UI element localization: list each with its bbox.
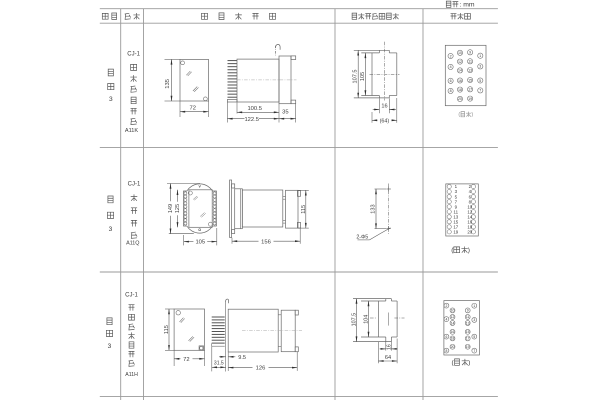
svg-text:9: 9 [467, 309, 469, 313]
svg-text:17: 17 [466, 337, 470, 341]
svg-text:14: 14 [451, 321, 455, 325]
svg-text:5: 5 [479, 79, 481, 83]
svg-text:16: 16 [451, 330, 455, 334]
svg-text:18: 18 [451, 337, 455, 341]
svg-text:15: 15 [466, 330, 470, 334]
svg-text:6: 6 [450, 79, 452, 83]
svg-text:149: 149 [168, 204, 174, 213]
svg-text:31.5: 31.5 [214, 360, 224, 366]
svg-text:135: 135 [165, 79, 171, 89]
svg-text:105: 105 [360, 72, 366, 81]
svg-text:4: 4 [450, 65, 452, 69]
svg-text:A11Q: A11Q [126, 241, 139, 247]
svg-text:12: 12 [451, 315, 455, 319]
svg-text:A11H: A11H [125, 372, 138, 378]
svg-text:18: 18 [458, 88, 462, 92]
svg-text:15: 15 [468, 78, 472, 82]
svg-text:133: 133 [370, 204, 376, 213]
svg-text:): ) [468, 247, 470, 254]
svg-text:4: 4 [445, 317, 447, 321]
svg-text:6: 6 [445, 335, 447, 339]
svg-text:3: 3 [473, 318, 475, 322]
svg-text:16: 16 [458, 79, 462, 83]
svg-text:13: 13 [466, 321, 470, 325]
svg-text:): ) [468, 360, 470, 367]
svg-text:122.5: 122.5 [244, 117, 259, 123]
svg-text:CJ-1: CJ-1 [125, 293, 138, 299]
svg-text:3: 3 [479, 65, 481, 69]
svg-text:7: 7 [479, 89, 481, 93]
svg-text:1: 1 [473, 304, 475, 308]
svg-text:CJ-1: CJ-1 [128, 182, 141, 188]
svg-text:8: 8 [450, 89, 452, 93]
svg-text:115: 115 [301, 205, 307, 214]
svg-text:(: ( [458, 112, 460, 118]
svg-text:2: 2 [445, 304, 447, 308]
svg-text:16: 16 [386, 344, 392, 350]
svg-text:14: 14 [458, 69, 462, 73]
svg-text:72: 72 [189, 105, 195, 111]
svg-text:35: 35 [282, 109, 288, 115]
svg-text:126: 126 [256, 366, 266, 372]
svg-text:16: 16 [381, 103, 387, 109]
svg-text:20: 20 [458, 97, 462, 101]
svg-text:(64): (64) [380, 118, 390, 124]
svg-text:156: 156 [261, 239, 271, 245]
svg-text:9: 9 [469, 51, 471, 55]
svg-text:19: 19 [468, 97, 472, 101]
svg-text:115: 115 [164, 325, 170, 334]
svg-text:105: 105 [195, 240, 205, 246]
svg-text:107.5: 107.5 [353, 70, 359, 84]
svg-text:19: 19 [453, 229, 458, 234]
svg-text:17: 17 [468, 88, 472, 92]
svg-text:11: 11 [468, 60, 472, 64]
svg-text:20: 20 [467, 229, 472, 234]
svg-text:10: 10 [451, 309, 455, 313]
svg-text:10: 10 [458, 51, 462, 55]
svg-text:: mm: : mm [459, 2, 474, 9]
svg-text:3: 3 [109, 226, 113, 233]
svg-text:3: 3 [108, 343, 112, 350]
svg-text:CJ-1: CJ-1 [127, 51, 140, 57]
svg-text:2: 2 [450, 54, 452, 58]
svg-text:72: 72 [183, 357, 189, 363]
svg-text:104: 104 [364, 315, 370, 324]
svg-text:7: 7 [473, 349, 475, 353]
svg-text:12: 12 [458, 60, 462, 64]
svg-text:5: 5 [473, 335, 475, 339]
svg-text:100.5: 100.5 [247, 106, 262, 112]
svg-text:3: 3 [109, 96, 113, 103]
svg-text:13: 13 [468, 68, 472, 72]
svg-text:1: 1 [479, 54, 481, 58]
svg-text:20: 20 [451, 345, 455, 349]
svg-text:): ) [471, 112, 473, 118]
svg-text:125: 125 [175, 204, 181, 213]
svg-text:9.5: 9.5 [238, 355, 246, 361]
svg-text:8: 8 [445, 349, 447, 353]
svg-text:107.5: 107.5 [351, 313, 357, 327]
svg-text:64: 64 [385, 355, 391, 361]
svg-text:A11K: A11K [125, 128, 139, 134]
svg-text:11: 11 [466, 315, 470, 319]
svg-text:19: 19 [466, 345, 470, 349]
